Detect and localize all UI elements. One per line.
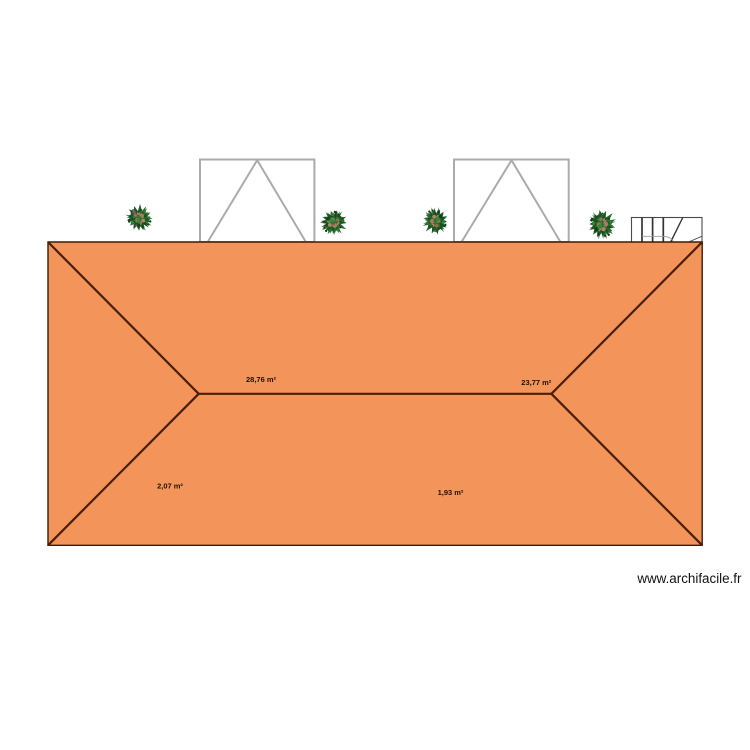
svg-text:www.archifacile.fr: www.archifacile.fr <box>636 571 742 586</box>
svg-text:1,93 m²: 1,93 m² <box>438 488 464 497</box>
svg-text:28,76 m²: 28,76 m² <box>246 375 277 384</box>
svg-text:23,77 m²: 23,77 m² <box>521 378 552 387</box>
svg-text:2,07 m²: 2,07 m² <box>157 482 183 491</box>
